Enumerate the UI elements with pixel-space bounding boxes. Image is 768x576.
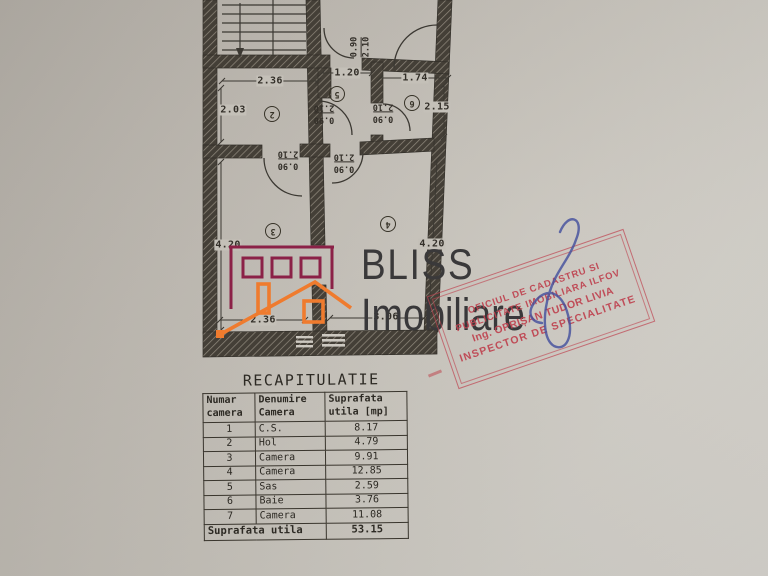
photo-of-document: 2.36 1.20 1.74 2.03 2.15 4.20 4.20 2.36 … (0, 0, 768, 576)
signature (0, 0, 768, 576)
